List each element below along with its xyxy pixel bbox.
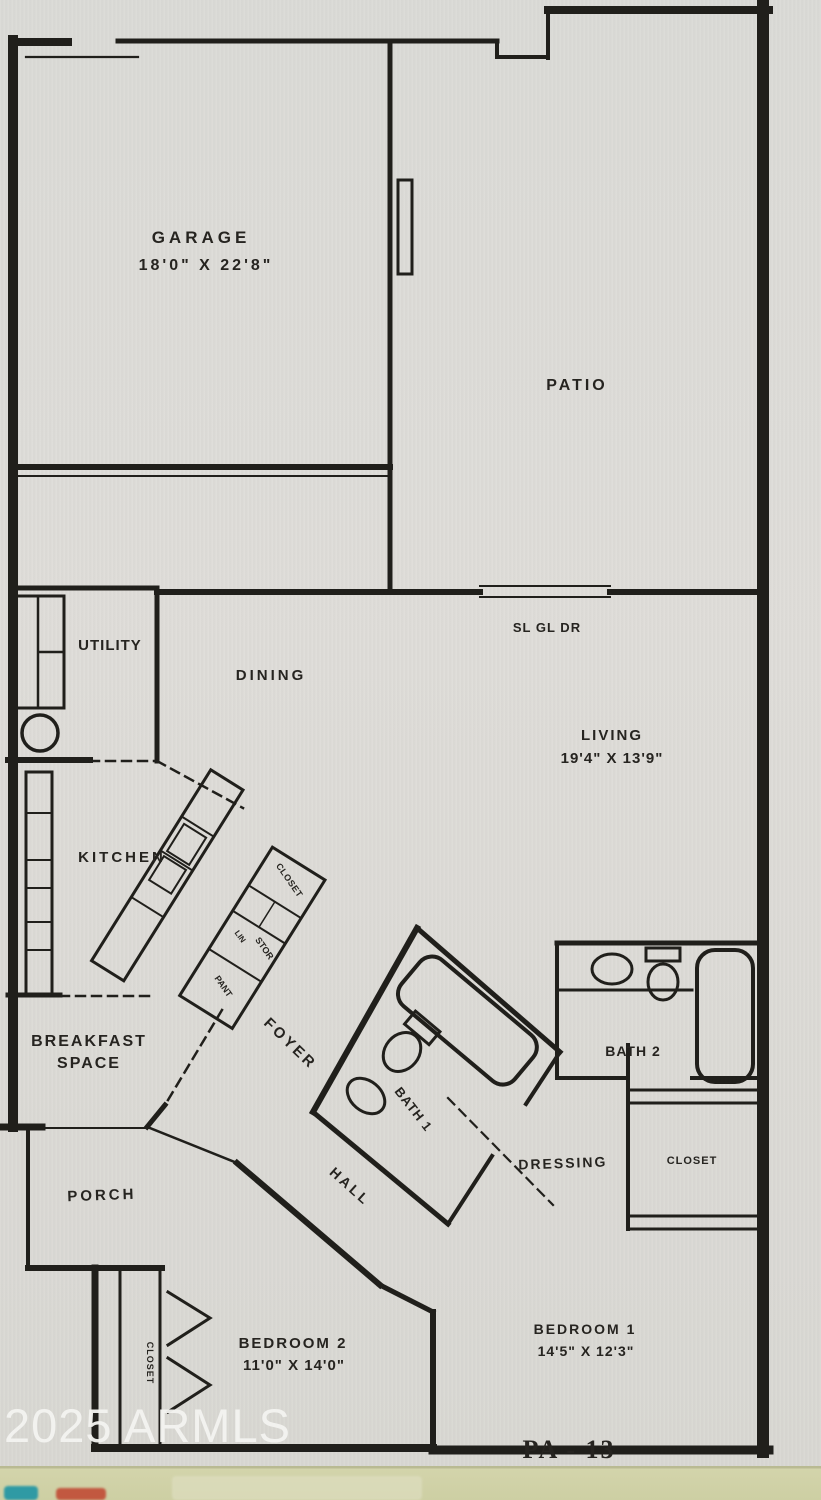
plan-code: PA - 13 [523,1435,616,1464]
hall-label: HALL [327,1164,374,1209]
dressing-closet-label: CLOSET [667,1155,718,1167]
garage-label: GARAGE [152,228,251,247]
utility-label: UTILITY [78,637,142,654]
bedroom2-closet-label: CLOSET [145,1342,155,1385]
mls-watermark: 2025 ARMLS [4,1398,291,1453]
foyer-hall-walls [2,1010,433,1450]
foyer-label: FOYER [260,1014,320,1073]
kitchen-cabinets [8,770,325,1029]
photo-fragment-teal [4,1486,38,1500]
sliding-door-label: SL GL DR [513,620,581,635]
sink-icon [340,1071,391,1121]
bedroom2-dims: 11'0" X 14'0" [243,1357,345,1374]
kitchen-label: KITCHEN [78,849,166,866]
photo-fragment-card [172,1476,422,1500]
sink-icon [592,954,632,984]
bedroom2-label: BEDROOM 2 [239,1335,348,1352]
water-heater-icon [22,715,58,751]
floorplan-photo: GARAGE 18'0" X 22'8" PATIO UTILITY DININ… [0,0,821,1500]
toilet-icon [646,948,680,1000]
sliding-glass-door [480,586,610,597]
house-top-walls [157,586,766,597]
bath2-label: BATH 2 [605,1043,661,1059]
garage-side-door [398,180,412,274]
next-photo-edge [0,1466,821,1500]
garage-dims: 18'0" X 22'8" [139,257,274,274]
breakfast-label-line2: SPACE [57,1055,121,1072]
porch-label: PORCH [67,1186,137,1205]
living-label: LIVING [581,727,643,744]
garage-walls [13,10,548,592]
storage-label: STOR [253,935,276,961]
floorplan-drawing: GARAGE 18'0" X 22'8" PATIO UTILITY DININ… [0,0,821,1466]
bedroom1-label: BEDROOM 1 [534,1321,637,1337]
bath2-walls [557,943,766,1082]
dressing-closet-walls [628,1045,763,1229]
breakfast-label-line1: BREAKFAST [31,1033,147,1050]
dining-label: DINING [236,667,307,684]
patio-label: PATIO [546,377,608,394]
dressing-label: DRESSING [518,1153,608,1172]
living-dims: 19'4" X 13'9" [561,750,664,767]
bifold-door-icon [168,1292,210,1345]
bedroom1-dims: 14'5" X 12'3" [538,1343,635,1359]
linen-label: LIN [233,929,248,945]
bath1-label: BATH 1 [392,1084,436,1134]
bathtub-icon [697,950,753,1082]
pantry-label: PANT [213,974,235,1000]
photo-fragment-red [56,1488,106,1500]
foyer-closet-label: CLOSET [274,861,305,899]
toilet-icon [375,1010,440,1079]
